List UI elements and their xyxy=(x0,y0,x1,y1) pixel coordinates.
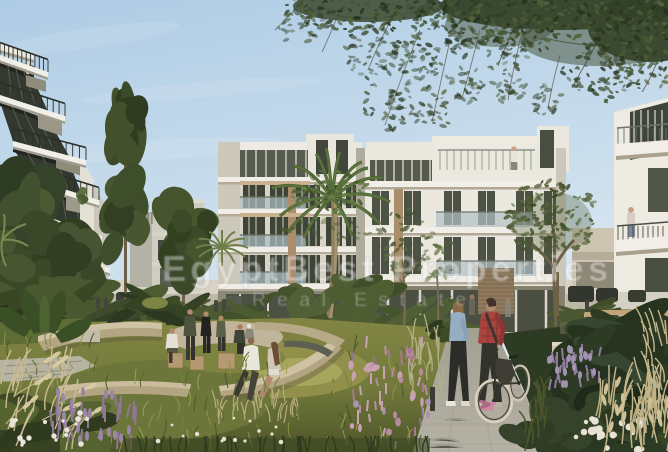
svg-text:EgyptBest Properties: EgyptBest Properties xyxy=(162,248,608,289)
